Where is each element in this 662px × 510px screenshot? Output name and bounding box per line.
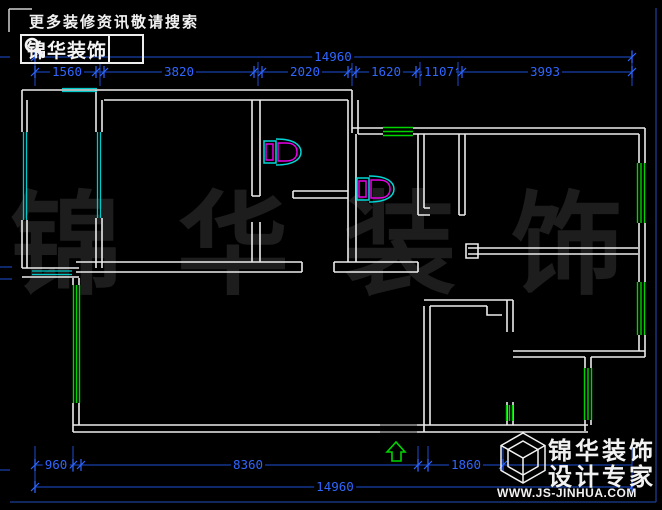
search-icon xyxy=(110,36,142,62)
toilet-1 xyxy=(264,139,301,165)
dim-top-seg-6: 3993 xyxy=(528,65,562,78)
dim-top-seg-4: 1620 xyxy=(369,65,403,78)
dim-top-total: 14960 xyxy=(312,50,354,63)
entrance-arrow-icon xyxy=(387,442,405,461)
toilet-2 xyxy=(357,176,394,202)
search-slogan: 更多装修资讯敬请搜索 xyxy=(29,11,199,32)
drawing-frame xyxy=(9,8,656,502)
dim-bottom-seg-1: 960 xyxy=(43,458,70,471)
dim-top-seg-2: 3820 xyxy=(162,65,196,78)
cad-floorplan-screenshot: 锦华装饰 xyxy=(0,0,662,510)
walls xyxy=(22,90,645,432)
cube-logo-icon xyxy=(501,433,545,483)
footer-website: WWW.JS-JINHUA.COM xyxy=(497,486,637,500)
dim-bottom-seg-2: 8360 xyxy=(231,458,265,471)
dim-bottom-total: 14960 xyxy=(314,480,356,493)
exterior-windows xyxy=(74,128,645,422)
dim-top-seg-1: 1560 xyxy=(50,65,84,78)
dim-top-seg-5: 1107 xyxy=(422,65,456,78)
balcony-windows xyxy=(24,89,101,275)
brand-logo-box: 锦华装饰 xyxy=(20,34,144,64)
dim-top-seg-3: 2020 xyxy=(288,65,322,78)
dim-bottom-seg-3: 1860 xyxy=(449,458,483,471)
